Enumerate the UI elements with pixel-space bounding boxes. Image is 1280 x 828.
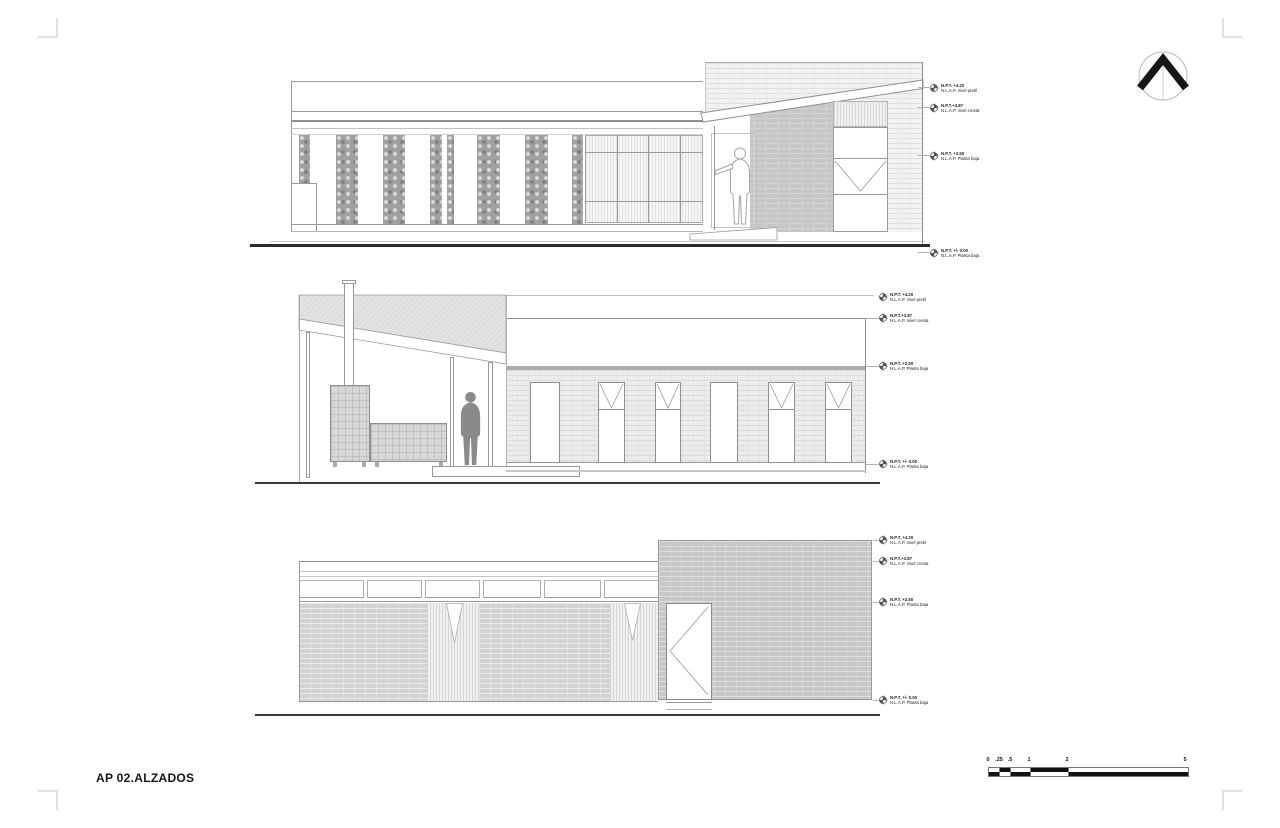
gabion-pier: [383, 135, 405, 224]
v-window: [655, 382, 681, 463]
gabion-pier: [525, 135, 548, 224]
level-target-icon: [878, 313, 888, 323]
level-marker: N.P.T.+3.87N.L.A.P. nivel cresta: [878, 556, 928, 566]
crop-mark-top-left: [38, 18, 58, 38]
level-label: N.L.A.P. Planta baja: [890, 464, 928, 469]
drawing-sheet: N.P.T. +4.20N.L.A.P. nivel pretil N.P.T.…: [0, 0, 1280, 828]
transom-line: [599, 409, 624, 410]
parapet-line: [506, 318, 866, 319]
gate-v-brace: [834, 160, 887, 193]
level-marker: N.P.T. +/- 0.00N.L.A.P. Planta baja: [929, 248, 979, 258]
level-label: N.L.A.P. Planta baja: [941, 156, 979, 161]
level-label: N.L.A.P. Planta baja: [941, 253, 979, 258]
level-target-icon: [929, 83, 939, 93]
gabion-fireplace: [330, 385, 370, 462]
clerestory-mullion: [421, 580, 426, 598]
scale-label: 1: [1027, 757, 1030, 763]
level-marker: N.P.T. +4.20N.L.A.P. nivel pretil: [929, 83, 977, 93]
furniture-foot: [362, 462, 366, 467]
gabion-pier: [447, 135, 454, 224]
brick-wall: [299, 603, 427, 702]
plinth-line: [291, 224, 703, 225]
wall-corner-line: [922, 62, 923, 244]
ground-line: [250, 244, 930, 247]
transom-line: [585, 152, 703, 153]
ground-line: [255, 714, 880, 716]
window-v-shutter: [656, 383, 680, 409]
sheet-title: AP 02.ALZADOS: [96, 771, 194, 785]
human-figure-outline: [713, 146, 757, 228]
clerestory-mullion: [479, 580, 484, 598]
level-marker: N.P.T. +/- 0.00N.L.A.P. Planta baja: [878, 695, 928, 705]
level-marker: N.P.T.+3.87N.L.A.P. nivel cresta: [929, 103, 979, 113]
gabion-pier: [477, 135, 500, 224]
scale-label: 0: [986, 757, 989, 763]
fascia-line: [291, 120, 703, 122]
leader-line: [866, 464, 878, 465]
plinth-line: [506, 470, 866, 472]
level-marker: N.P.T. +4.20N.L.A.P. nivel pretil: [878, 292, 926, 302]
section-boundary-line: [506, 295, 507, 466]
level-target-icon: [878, 695, 888, 705]
scale-segment: [989, 772, 999, 776]
fascia-line: [291, 128, 703, 129]
scale-tick: [1068, 768, 1069, 776]
window-v-shutter: [769, 383, 794, 409]
section-cut-line: [299, 295, 300, 483]
level-marker: N.P.T. +2.50N.L.A.P. Planta baja: [878, 597, 928, 607]
furniture-foot: [333, 462, 337, 467]
level-target-icon: [878, 535, 888, 545]
glazed-screen: [585, 135, 703, 223]
parapet-line: [291, 81, 703, 82]
scale-label: 5: [1183, 757, 1186, 763]
gabion-pier: [430, 135, 442, 224]
human-figure-solid: [456, 391, 485, 468]
porch-post: [450, 357, 454, 467]
leader-line: [918, 155, 929, 156]
level-label: N.L.A.P. Planta baja: [890, 602, 928, 607]
level-label: N.L.A.P. nivel cresta: [941, 108, 979, 113]
porch-post: [306, 332, 310, 478]
scale-label: 2: [1065, 757, 1068, 763]
scale-segment: [1068, 772, 1188, 776]
scale-segment: [1030, 768, 1068, 772]
level-marker: N.P.T. +/- 0.00N.L.A.P. Planta baja: [878, 459, 928, 469]
crop-mark-bottom-left: [38, 790, 58, 810]
level-label: N.L.A.P. nivel cresta: [890, 561, 928, 566]
scale-bar-frame: [988, 767, 1189, 777]
scale-label: .5: [1008, 757, 1013, 763]
clerestory-mullion: [540, 580, 545, 598]
window-v-shutter: [826, 383, 851, 409]
transom-line: [769, 409, 794, 410]
plinth-line: [299, 701, 658, 702]
level-target-icon: [878, 361, 888, 371]
level-target-icon: [929, 248, 939, 258]
gray-brick-wall: [750, 102, 833, 232]
fascia-line: [299, 576, 658, 577]
scale-segment: [999, 768, 1010, 772]
gabion-pier: [572, 135, 583, 224]
gabion-pier: [336, 135, 358, 224]
transom-line: [656, 409, 680, 410]
leader-line: [918, 87, 929, 88]
transom-line: [826, 409, 851, 410]
gate-rail-line: [834, 158, 887, 159]
level-marker: N.P.T. +2.50N.L.A.P. Planta baja: [929, 151, 979, 161]
ribbed-panel: [833, 101, 888, 127]
level-label: N.L.A.P. nivel pretil: [941, 88, 977, 93]
level-target-icon: [929, 151, 939, 161]
scale-tick: [999, 768, 1000, 776]
threshold-line: [666, 702, 712, 703]
gabion-bench: [370, 423, 447, 462]
ground-line: [255, 482, 880, 484]
door-swing-lines: [667, 604, 710, 698]
scale-tick: [1030, 768, 1031, 776]
wall-corner-line: [865, 318, 866, 473]
level-target-icon: [878, 597, 888, 607]
level-marker: N.P.T.+3.87N.L.A.P. nivel cresta: [878, 313, 928, 323]
level-label: N.L.A.P. Planta baja: [890, 700, 928, 705]
v-notch: [624, 603, 641, 641]
wall-corner-line: [299, 561, 300, 702]
level-label: N.L.A.P. Planta baja: [890, 366, 928, 371]
fascia-line: [291, 111, 703, 112]
level-label: N.L.A.P. nivel pretil: [890, 540, 926, 545]
gate-rail-line: [834, 194, 887, 195]
level-label: N.L.A.P. nivel cresta: [890, 318, 928, 323]
v-window: [598, 382, 625, 463]
mullion-line: [680, 135, 681, 223]
crop-mark-bottom-right: [1222, 790, 1242, 810]
furniture-foot: [375, 462, 379, 467]
level-target-icon: [878, 459, 888, 469]
window-v-shutter: [599, 383, 624, 409]
north-arrow-icon: [1136, 46, 1190, 102]
scale-tick: [1010, 768, 1011, 776]
leader-line: [866, 366, 878, 367]
leader-line: [918, 252, 929, 253]
section-roof-group: [296, 280, 508, 372]
mullion-line: [617, 135, 618, 223]
leader-line: [866, 318, 878, 319]
door-opening: [530, 382, 560, 463]
scale-label: .25: [995, 757, 1003, 763]
v-window: [768, 382, 795, 463]
crop-mark-top-right: [1222, 18, 1242, 38]
level-label: N.L.A.P. nivel pretil: [890, 297, 926, 302]
brick-wall: [479, 603, 610, 702]
porch-post: [488, 362, 493, 467]
clerestory-mullion: [600, 580, 605, 598]
entry-door: [666, 603, 712, 700]
scale-segment: [1010, 772, 1030, 776]
threshold-line: [666, 709, 712, 710]
clerestory-mullion: [363, 580, 368, 598]
gate-panel: [833, 127, 888, 232]
door-opening: [710, 382, 738, 463]
level-target-icon: [929, 103, 939, 113]
v-notch: [446, 603, 463, 643]
level-marker: N.P.T. +2.50N.L.A.P. Planta baja: [878, 361, 928, 371]
brick-wall: [506, 370, 866, 463]
transom-line: [585, 201, 703, 202]
leader-line: [918, 107, 929, 108]
level-marker: N.P.T. +4.20N.L.A.P. nivel pretil: [878, 535, 926, 545]
parapet-line: [299, 561, 658, 562]
fascia-line: [299, 571, 658, 572]
chimney: [344, 283, 354, 386]
floor-line: [506, 462, 866, 463]
plinth-line: [291, 231, 703, 232]
level-target-icon: [878, 292, 888, 302]
level-target-icon: [878, 556, 888, 566]
mullion-line: [648, 135, 649, 223]
v-window: [825, 382, 852, 463]
